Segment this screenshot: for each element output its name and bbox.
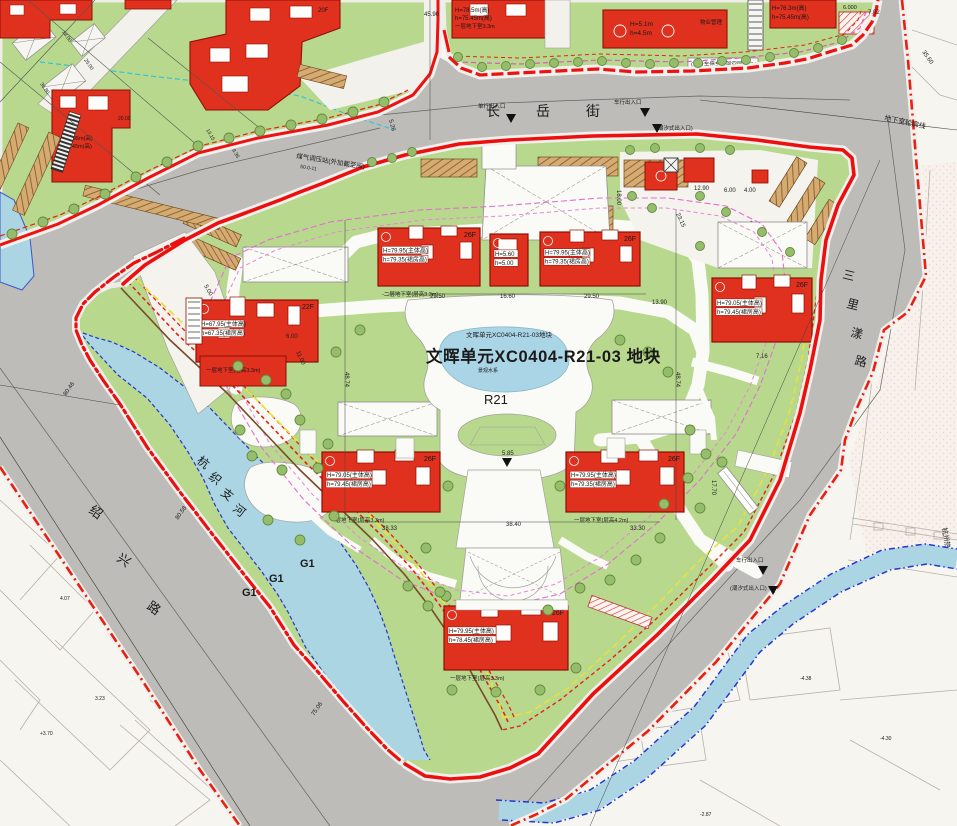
- svg-text:38.40: 38.40: [506, 522, 522, 528]
- svg-text:H=79.05(主体高): H=79.05(主体高): [717, 299, 762, 307]
- svg-text:G1: G1: [242, 587, 257, 599]
- svg-text:h=67.35(裙房高): h=67.35(裙房高): [201, 329, 245, 337]
- svg-text:H=5.1m: H=5.1m: [630, 21, 653, 28]
- svg-text:48.74: 48.74: [343, 372, 349, 388]
- svg-text:h=79.35(裙房高): h=79.35(裙房高): [545, 258, 589, 266]
- svg-text:H=79.95(主体高): H=79.95(主体高): [383, 246, 428, 254]
- svg-text:26F: 26F: [552, 610, 564, 617]
- svg-text:26F: 26F: [796, 282, 808, 289]
- svg-text:车行出入口: 车行出入口: [736, 556, 764, 564]
- svg-text:H=79.95(主体高): H=79.95(主体高): [545, 249, 590, 257]
- svg-text:h=75.45m(高): h=75.45m(高): [455, 14, 492, 22]
- svg-text:-2.87: -2.87: [700, 812, 712, 818]
- svg-text:(潮汐式出入口): (潮汐式出入口): [656, 124, 693, 132]
- svg-text:h=78.45(裙房高): h=78.45(裙房高): [449, 636, 493, 644]
- svg-text:22F: 22F: [302, 304, 314, 311]
- svg-text:4.00: 4.00: [744, 188, 756, 194]
- svg-text:12.90: 12.90: [694, 186, 710, 192]
- svg-text:h=79.45(裙房高): h=79.45(裙房高): [327, 480, 371, 488]
- svg-text:H=5.60: H=5.60: [495, 252, 515, 258]
- svg-text:H=79.05(主体高): H=79.05(主体高): [327, 471, 372, 479]
- svg-text:一层地下室3.3m: 一层地下室3.3m: [455, 22, 495, 30]
- svg-text:4.07: 4.07: [60, 596, 70, 602]
- svg-text:h=4.5m: h=4.5m: [630, 30, 652, 37]
- svg-text:物业管理: 物业管理: [700, 18, 723, 26]
- svg-text:26F: 26F: [464, 232, 476, 239]
- svg-text:一层地下室(层高3.3m): 一层地下室(层高3.3m): [450, 674, 505, 682]
- svg-text:h=79.45(裙房高): h=79.45(裙房高): [717, 308, 761, 316]
- svg-text:6.00: 6.00: [286, 334, 298, 340]
- svg-text:29.50: 29.50: [430, 294, 446, 300]
- svg-text:26F: 26F: [624, 236, 636, 243]
- svg-text:H=76.3m(高): H=76.3m(高): [772, 4, 807, 12]
- svg-text:G1: G1: [300, 558, 315, 570]
- svg-text:h=75.45m(高): h=75.45m(高): [772, 13, 809, 21]
- svg-text:h=5.00: h=5.00: [495, 261, 514, 267]
- svg-text:一层地下室(层高4.2m): 一层地下室(层高4.2m): [574, 516, 629, 524]
- svg-text:16.60: 16.60: [500, 294, 516, 300]
- svg-text:H=67.95(主体高): H=67.95(主体高): [201, 320, 246, 328]
- svg-text:13.90: 13.90: [652, 300, 668, 306]
- svg-text:29.50: 29.50: [584, 294, 600, 300]
- svg-text:文晖单元XC0404-R21-03 地块: 文晖单元XC0404-R21-03 地块: [426, 346, 661, 366]
- svg-text:+3.70: +3.70: [40, 731, 53, 737]
- svg-text:26F: 26F: [668, 456, 680, 463]
- svg-text:G1: G1: [269, 573, 284, 585]
- svg-text:38.33: 38.33: [382, 526, 398, 532]
- svg-text:3.23: 3.23: [95, 696, 105, 702]
- svg-text:48.74: 48.74: [674, 372, 680, 388]
- svg-text:H=78.5m(高): H=78.5m(高): [455, 6, 490, 14]
- svg-text:45.90: 45.90: [424, 12, 440, 18]
- svg-text:景观水系: 景观水系: [478, 367, 498, 374]
- svg-text:H=79.95(主体高): H=79.95(主体高): [571, 471, 616, 479]
- svg-text:26F: 26F: [424, 456, 436, 463]
- svg-text:6.00: 6.00: [724, 188, 736, 194]
- svg-text:(潮汐式出入口): (潮汐式出入口): [730, 584, 767, 592]
- svg-text:h=79.35(裙房高): h=79.35(裙房高): [571, 480, 615, 488]
- svg-text:6.000: 6.000: [843, 5, 857, 11]
- svg-text:文晖单元XC0404-R21-03地块: 文晖单元XC0404-R21-03地块: [466, 330, 552, 339]
- svg-text:20F: 20F: [318, 8, 329, 14]
- svg-text:18.00: 18.00: [615, 190, 621, 206]
- svg-text:20.00: 20.00: [118, 116, 131, 122]
- svg-text:17.70: 17.70: [710, 480, 716, 496]
- svg-text:车行出入口: 车行出入口: [614, 98, 642, 106]
- svg-text:单行出入口: 单行出入口: [478, 102, 506, 110]
- svg-text:H=79.95(主体高): H=79.95(主体高): [449, 627, 494, 635]
- svg-text:R21: R21: [484, 392, 508, 407]
- svg-text:h=79.35(裙房高): h=79.35(裙房高): [383, 255, 427, 263]
- svg-text:7.16: 7.16: [756, 354, 768, 360]
- svg-text:5.85: 5.85: [502, 451, 514, 457]
- svg-text:7.02: 7.02: [868, 10, 880, 16]
- svg-text:-4.38: -4.38: [800, 676, 812, 682]
- svg-text:33.30: 33.30: [630, 526, 646, 532]
- svg-text:-4.30: -4.30: [880, 736, 892, 742]
